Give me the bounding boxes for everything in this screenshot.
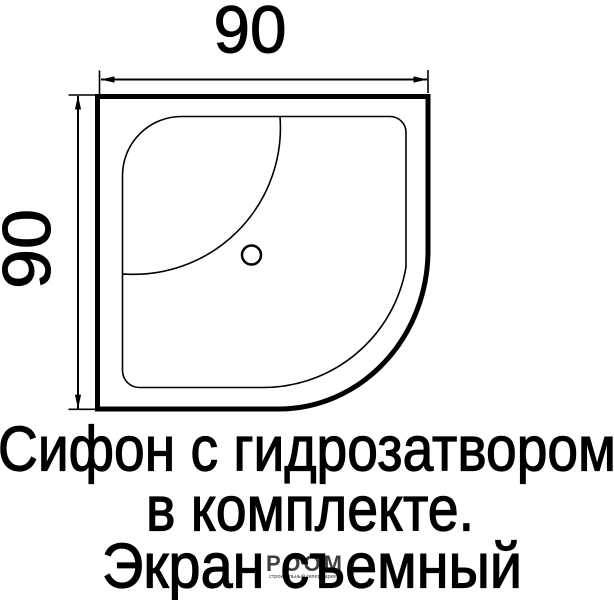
svg-text:90: 90 xyxy=(214,0,287,68)
svg-text:90: 90 xyxy=(0,209,65,289)
svg-text:Экран съемный: Экран съемный xyxy=(102,532,522,600)
